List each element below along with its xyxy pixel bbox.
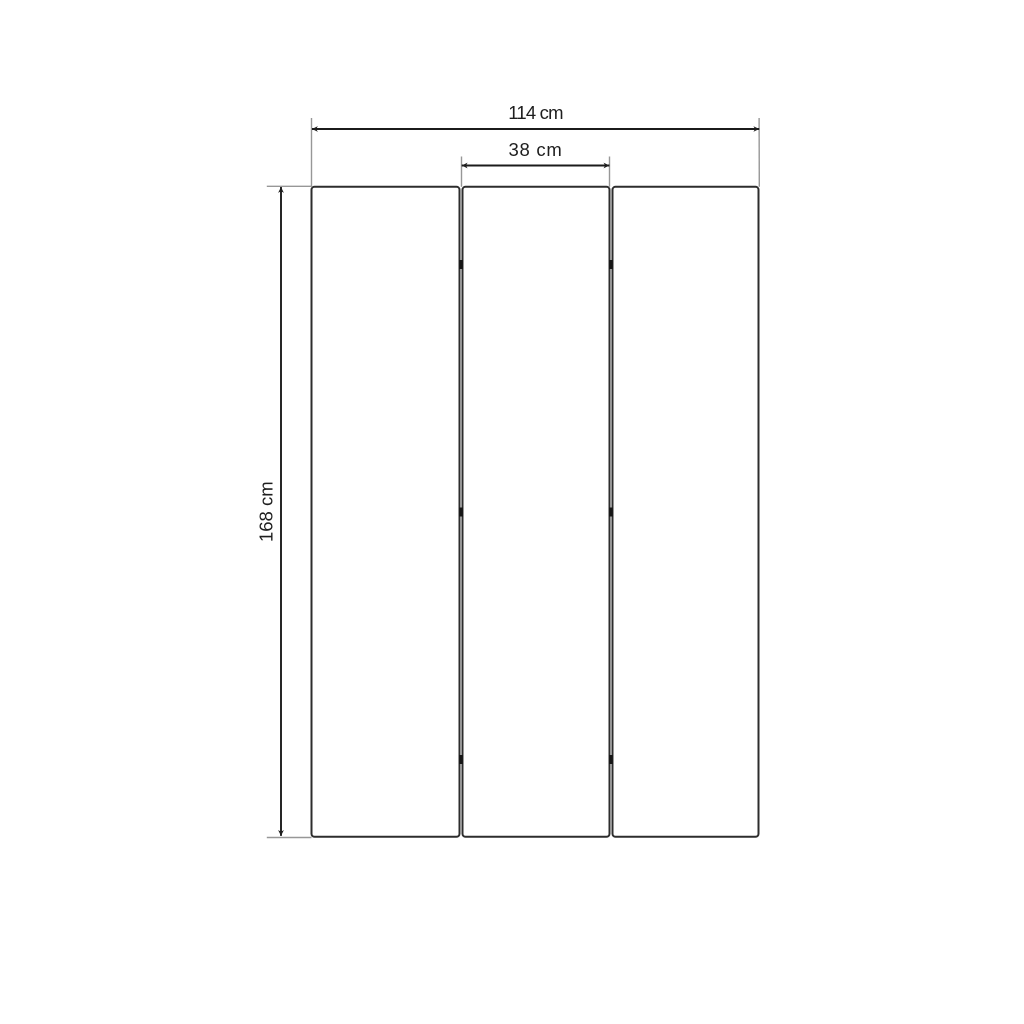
svg-text:114 cm: 114 cm — [508, 102, 563, 123]
svg-text:168 cm: 168 cm — [256, 481, 277, 542]
svg-text:38 cm: 38 cm — [509, 139, 563, 160]
